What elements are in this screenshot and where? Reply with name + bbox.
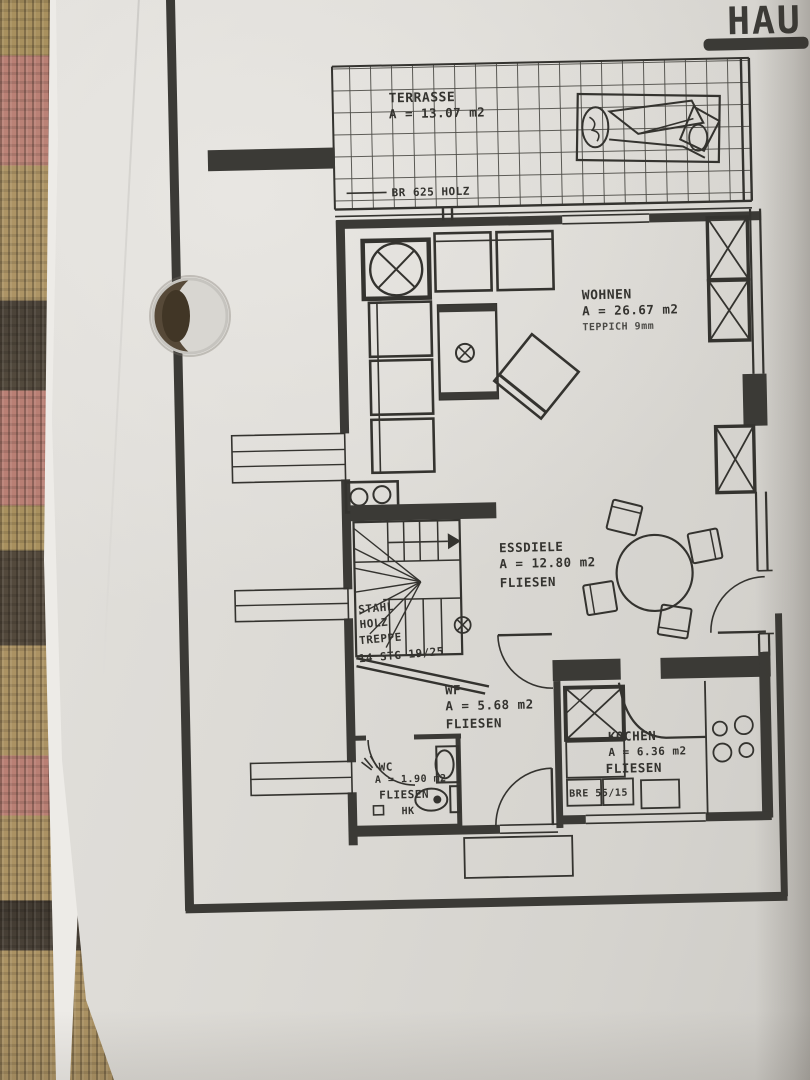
kochen-floor: FLIESEN: [606, 760, 662, 776]
wc-scribble: [361, 756, 377, 770]
essdiele-area: A = 12.80 m2: [499, 554, 596, 571]
wohnen-area: A = 26.67 m2: [582, 301, 679, 318]
armchair: [494, 334, 578, 418]
essdiele-label: ESSDIELE: [499, 539, 564, 555]
hall-door: [498, 634, 553, 689]
kochen-label: KOCHEN: [608, 728, 656, 744]
chimney-x-box-top: [707, 217, 750, 341]
window-left-3: [251, 761, 353, 795]
kitchen: KOCHEN A = 6.36 m2 FLIESEN BRE 55/15: [565, 680, 755, 818]
dining-area: ESSDIELE A = 12.80 m2 FLIESEN: [498, 497, 724, 642]
stair-wall-bar: [350, 502, 496, 521]
wc-radiator: HK: [401, 806, 414, 817]
stairs-label-2: HOLZ: [359, 616, 389, 632]
sofa-seats: [367, 231, 557, 473]
wc-room: WC A = 1.90 m2 FLIESEN HK: [347, 736, 463, 830]
wc-label: WC: [378, 760, 393, 773]
bottom-edge-shadow: [0, 1010, 810, 1080]
essdiele-floor: FLIESEN: [500, 574, 556, 590]
radiator-symbol: [373, 806, 383, 815]
chimney-x-box-mid: [716, 426, 755, 493]
wohnen-floor: TEPPICH 9mm: [582, 321, 654, 333]
stove-icon: [363, 240, 430, 299]
hole-punch: [150, 276, 230, 356]
terrace: TERRASSE A = 13.07 m2 BR 625 HOLZ: [206, 58, 752, 219]
terrace-area: A = 13.07 m2: [389, 104, 486, 121]
kitchen-counter-note: BRE 55/15: [569, 788, 628, 800]
wf-floor: FLIESEN: [446, 715, 502, 731]
rail-dim-line: [347, 192, 387, 193]
kitchen-wall-left: [552, 659, 620, 681]
dining-chair: [687, 528, 722, 563]
coffee-table: [438, 304, 498, 399]
wc-area: A = 1.90 m2: [375, 773, 447, 785]
photo-scene: HAU: [0, 0, 810, 1080]
terrace-rail-label: BR 625 HOLZ: [391, 185, 470, 200]
window-left-1: [232, 433, 346, 482]
terrace-side-screen: [208, 148, 335, 172]
stairs-label-4: 14 STG 19/25: [358, 645, 444, 666]
floor-plan-drawing: HAU: [0, 0, 810, 1080]
counter-edge: [705, 681, 708, 815]
stairs-label-3: TREPPE: [359, 630, 403, 647]
wf-area: A = 5.68 m2: [445, 697, 534, 714]
kochen-area: A = 6.36 m2: [608, 744, 687, 759]
window-left-2: [235, 588, 349, 621]
terrace-label: TERRASSE: [388, 90, 455, 106]
wf-label: WF: [445, 682, 461, 697]
right-edge-shadow: [755, 0, 810, 1080]
wc-floor: FLIESEN: [379, 788, 429, 802]
entry-porch: [464, 836, 573, 878]
living-room: WOHNEN A = 26.67 m2 TEPPICH 9mm: [340, 228, 682, 512]
dining-chair: [606, 499, 642, 535]
dining-table: [616, 534, 694, 612]
front-door: [495, 768, 553, 826]
dining-chair: [583, 581, 617, 615]
staircase: STAHL HOLZ TREPPE 14 STG 19/25: [350, 502, 499, 665]
wohnen-label: WOHNEN: [582, 287, 632, 303]
stair-direction-arrow: [388, 533, 461, 551]
cooktop-icon: [713, 716, 754, 762]
